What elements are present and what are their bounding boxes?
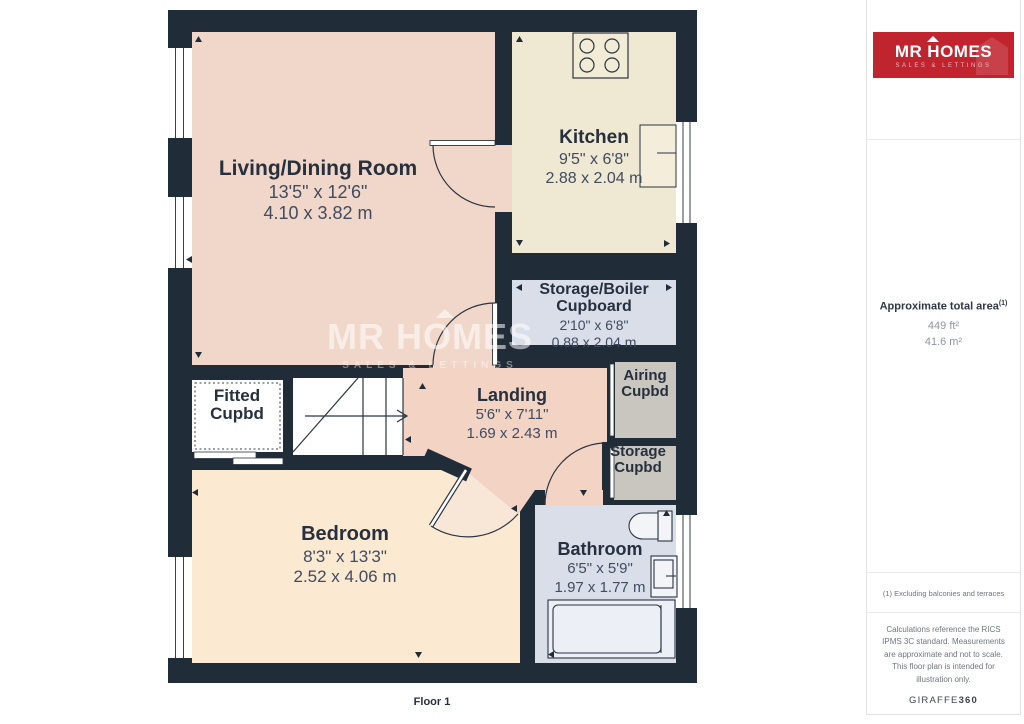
disclaimer-section: Calculations reference the RICS IPMS 3C … [867,612,1020,714]
room-label-landing: Landing 5'6" x 7'11" 1.69 x 2.43 m [467,386,558,442]
floor-label: Floor 1 [414,696,451,708]
brand-tagline: SALES & LETTINGS [895,63,991,69]
info-panel: MR HOMES SALES & LETTINGS Approximate to… [866,0,1021,715]
total-area-title: Approximate total area(1) [867,300,1020,313]
total-area-section: Approximate total area(1) 449 ft² 41.6 m… [867,300,1020,348]
brand-mr: MR [895,42,922,62]
room-label-airing-cupbd: Airing Cupbd [613,368,677,400]
room-label-living-dining: Living/Dining Room 13'5" x 12'6" 4.10 x … [219,158,417,224]
doorway-living-kitchen [495,145,512,212]
stove-icon [573,33,628,78]
room-label-kitchen: Kitchen 9'5" x 6'8" 2.88 x 2.04 m [546,128,643,187]
disclaimer-text: Calculations reference the RICS IPMS 3C … [878,624,1009,686]
logo-section: MR HOMES SALES & LETTINGS [867,32,1020,140]
footnote-text: (1) Excluding balconies and terraces [883,589,1004,598]
floorplan: MR HOMES SALES & LETTINGS Living/Dining … [160,0,710,724]
total-area-imperial: 449 ft² [867,320,1020,332]
floorplan-drawing [160,0,710,724]
doorway-living-landing [433,365,495,378]
living-door-leaf [493,303,498,365]
agency-logo: MR HOMES SALES & LETTINGS [873,32,1014,78]
room-label-bedroom: Bedroom 8'3" x 13'3" 2.52 x 4.06 m [293,524,396,586]
floorplan-page: MR HOMES SALES & LETTINGS Living/Dining … [0,0,1024,724]
bathtub-icon [548,600,675,658]
room-label-bathroom: Bathroom 6'5" x 5'9" 1.97 x 1.77 m [555,540,646,596]
kitchen-door-leaf [430,141,495,146]
doorway-landing-bathroom [545,490,603,505]
footnote-section: (1) Excluding balconies and terraces [867,572,1020,613]
total-area-metric: 41.6 m² [867,336,1020,348]
counter-icon [640,125,676,187]
roof-icon [927,36,939,42]
room-label-fitted-cupbd: Fitted Cupbd [205,387,269,424]
room-label-storage-cupbd: Storage Cupbd [603,444,673,476]
brand-homes: HOMES [927,42,992,62]
footnote-marker: (1) [999,300,1008,307]
room-label-storage-boiler: Storage/Boiler Cupboard 2'10" x 6'8" 0.8… [528,281,660,350]
provider-logo: GIRAFFE360 [878,695,1009,706]
